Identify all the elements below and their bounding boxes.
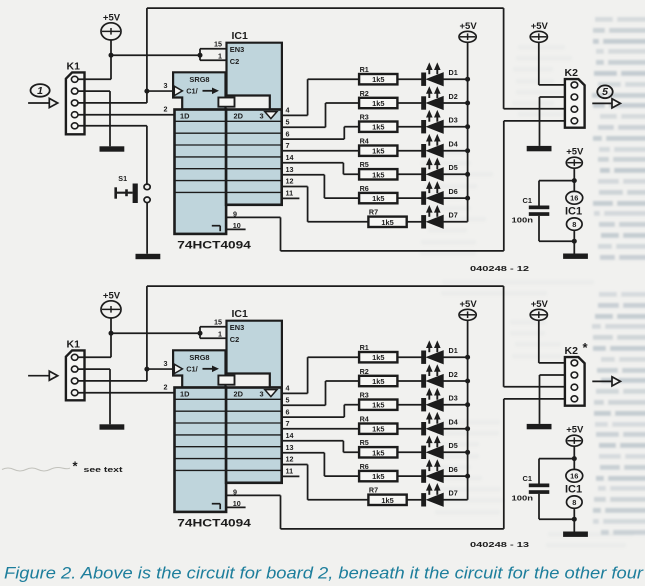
svg-text:5: 5 (286, 396, 290, 405)
svg-text:1k5: 1k5 (372, 472, 384, 481)
svg-text:14: 14 (286, 431, 294, 440)
svg-text:Figure 2. Above is the circuit: Figure 2. Above is the circuit for board… (4, 564, 645, 583)
svg-text:6: 6 (286, 129, 290, 138)
svg-text:2: 2 (164, 383, 168, 392)
svg-text:D5: D5 (449, 163, 458, 172)
svg-text:SRG8: SRG8 (189, 353, 209, 362)
svg-text:1: 1 (218, 329, 222, 338)
svg-text:+5V: +5V (103, 290, 121, 301)
svg-text:R2: R2 (360, 89, 369, 98)
svg-text:1k5: 1k5 (372, 123, 384, 132)
svg-text:K2: K2 (565, 67, 579, 79)
svg-text:3: 3 (164, 359, 168, 368)
svg-text:R5: R5 (360, 438, 369, 447)
svg-text:1k5: 1k5 (372, 147, 384, 156)
svg-text:R5: R5 (360, 160, 369, 169)
svg-text:K1: K1 (67, 339, 81, 351)
svg-text:8: 8 (572, 498, 576, 507)
svg-text:1k5: 1k5 (372, 377, 384, 386)
svg-text:1D: 1D (180, 389, 190, 398)
svg-text:D4: D4 (449, 140, 458, 149)
svg-text:11: 11 (286, 467, 294, 476)
svg-text:R4: R4 (360, 415, 369, 424)
svg-text:2: 2 (164, 105, 168, 114)
svg-text:K1: K1 (67, 61, 81, 73)
svg-text:R3: R3 (360, 391, 369, 400)
svg-text:D1: D1 (449, 68, 458, 77)
svg-text:8: 8 (572, 220, 576, 229)
svg-text:R2: R2 (360, 367, 369, 376)
svg-text:R1: R1 (360, 65, 369, 74)
svg-text:R7: R7 (369, 208, 378, 217)
svg-text:1k5: 1k5 (372, 170, 384, 179)
svg-text:D2: D2 (449, 92, 458, 101)
svg-text:IC1: IC1 (232, 308, 249, 320)
svg-text:IC1: IC1 (565, 483, 582, 495)
svg-text:7: 7 (286, 141, 290, 150)
svg-text:K2: K2 (565, 345, 579, 357)
svg-text:5: 5 (286, 118, 290, 127)
svg-text:6: 6 (286, 407, 290, 416)
svg-text:040248 - 13: 040248 - 13 (470, 540, 529, 549)
svg-text:4: 4 (286, 384, 290, 393)
svg-text:EN3: EN3 (230, 323, 244, 332)
svg-text:C1: C1 (523, 474, 532, 483)
svg-text:13: 13 (286, 443, 294, 452)
svg-text:100n: 100n (512, 216, 534, 225)
svg-text:IC1: IC1 (232, 30, 249, 42)
svg-text:1D: 1D (180, 111, 190, 120)
svg-text:+5V: +5V (103, 12, 121, 23)
svg-text:IC1: IC1 (565, 205, 582, 217)
svg-text:+5V: +5V (566, 425, 584, 436)
svg-text:1k5: 1k5 (381, 496, 393, 505)
svg-text:1k5: 1k5 (372, 448, 384, 457)
svg-text:C1: C1 (523, 196, 532, 205)
svg-text:11: 11 (286, 189, 294, 198)
svg-text:3: 3 (164, 81, 168, 90)
svg-text:13: 13 (286, 165, 294, 174)
svg-text:S1: S1 (118, 174, 127, 183)
svg-text:74HCT4094: 74HCT4094 (177, 518, 251, 530)
svg-text:12: 12 (286, 455, 294, 464)
svg-text:+5V: +5V (460, 21, 478, 32)
svg-text:1k5: 1k5 (372, 194, 384, 203)
svg-text:C1/: C1/ (186, 87, 198, 96)
svg-text:1k5: 1k5 (372, 99, 384, 108)
svg-text:D6: D6 (449, 187, 458, 196)
svg-text:D5: D5 (449, 441, 458, 450)
svg-text:3: 3 (259, 111, 263, 120)
svg-text:4: 4 (286, 106, 290, 115)
svg-text:1: 1 (37, 85, 43, 97)
svg-text:D3: D3 (449, 394, 458, 403)
svg-text:16: 16 (570, 194, 578, 203)
svg-text:1k5: 1k5 (381, 218, 393, 227)
svg-text:R3: R3 (360, 113, 369, 122)
svg-text:+5V: +5V (531, 299, 549, 310)
svg-text:100n: 100n (512, 494, 534, 503)
svg-text:+5V: +5V (531, 21, 549, 32)
svg-text:16: 16 (570, 472, 578, 481)
svg-text:R1: R1 (360, 343, 369, 352)
svg-text:D2: D2 (449, 370, 458, 379)
svg-text:R6: R6 (360, 184, 369, 193)
svg-text:D4: D4 (449, 418, 458, 427)
svg-text:3: 3 (259, 389, 263, 398)
svg-text:7: 7 (286, 419, 290, 428)
svg-text:040248 - 12: 040248 - 12 (470, 264, 529, 273)
svg-text:R7: R7 (369, 486, 378, 495)
svg-text:EN3: EN3 (230, 45, 244, 54)
svg-text:D7: D7 (449, 211, 458, 220)
svg-text:+5V: +5V (566, 147, 584, 158)
svg-text:5: 5 (602, 86, 608, 98)
svg-text:R6: R6 (360, 462, 369, 471)
svg-text:2D: 2D (234, 111, 244, 120)
svg-text:+5V: +5V (460, 299, 478, 310)
svg-text:SRG8: SRG8 (189, 75, 209, 84)
svg-text:1k5: 1k5 (372, 75, 384, 84)
svg-text:2D: 2D (234, 389, 244, 398)
svg-text:74HCT4094: 74HCT4094 (177, 240, 251, 252)
svg-text:D3: D3 (449, 116, 458, 125)
svg-text:1: 1 (218, 51, 222, 60)
svg-text:see text: see text (84, 465, 124, 474)
svg-text:1k5: 1k5 (372, 353, 384, 362)
svg-text:14: 14 (286, 153, 294, 162)
svg-text:1k5: 1k5 (372, 401, 384, 410)
svg-text:R4: R4 (360, 137, 369, 146)
svg-text:D7: D7 (449, 489, 458, 498)
svg-text:C2: C2 (230, 57, 239, 66)
svg-text:C2: C2 (230, 335, 239, 344)
svg-text:D1: D1 (449, 346, 458, 355)
svg-text:D6: D6 (449, 465, 458, 474)
svg-text:15: 15 (214, 40, 222, 49)
svg-text:15: 15 (214, 318, 222, 327)
svg-text:12: 12 (286, 177, 294, 186)
svg-text:1k5: 1k5 (372, 425, 384, 434)
svg-text:C1/: C1/ (186, 365, 198, 374)
